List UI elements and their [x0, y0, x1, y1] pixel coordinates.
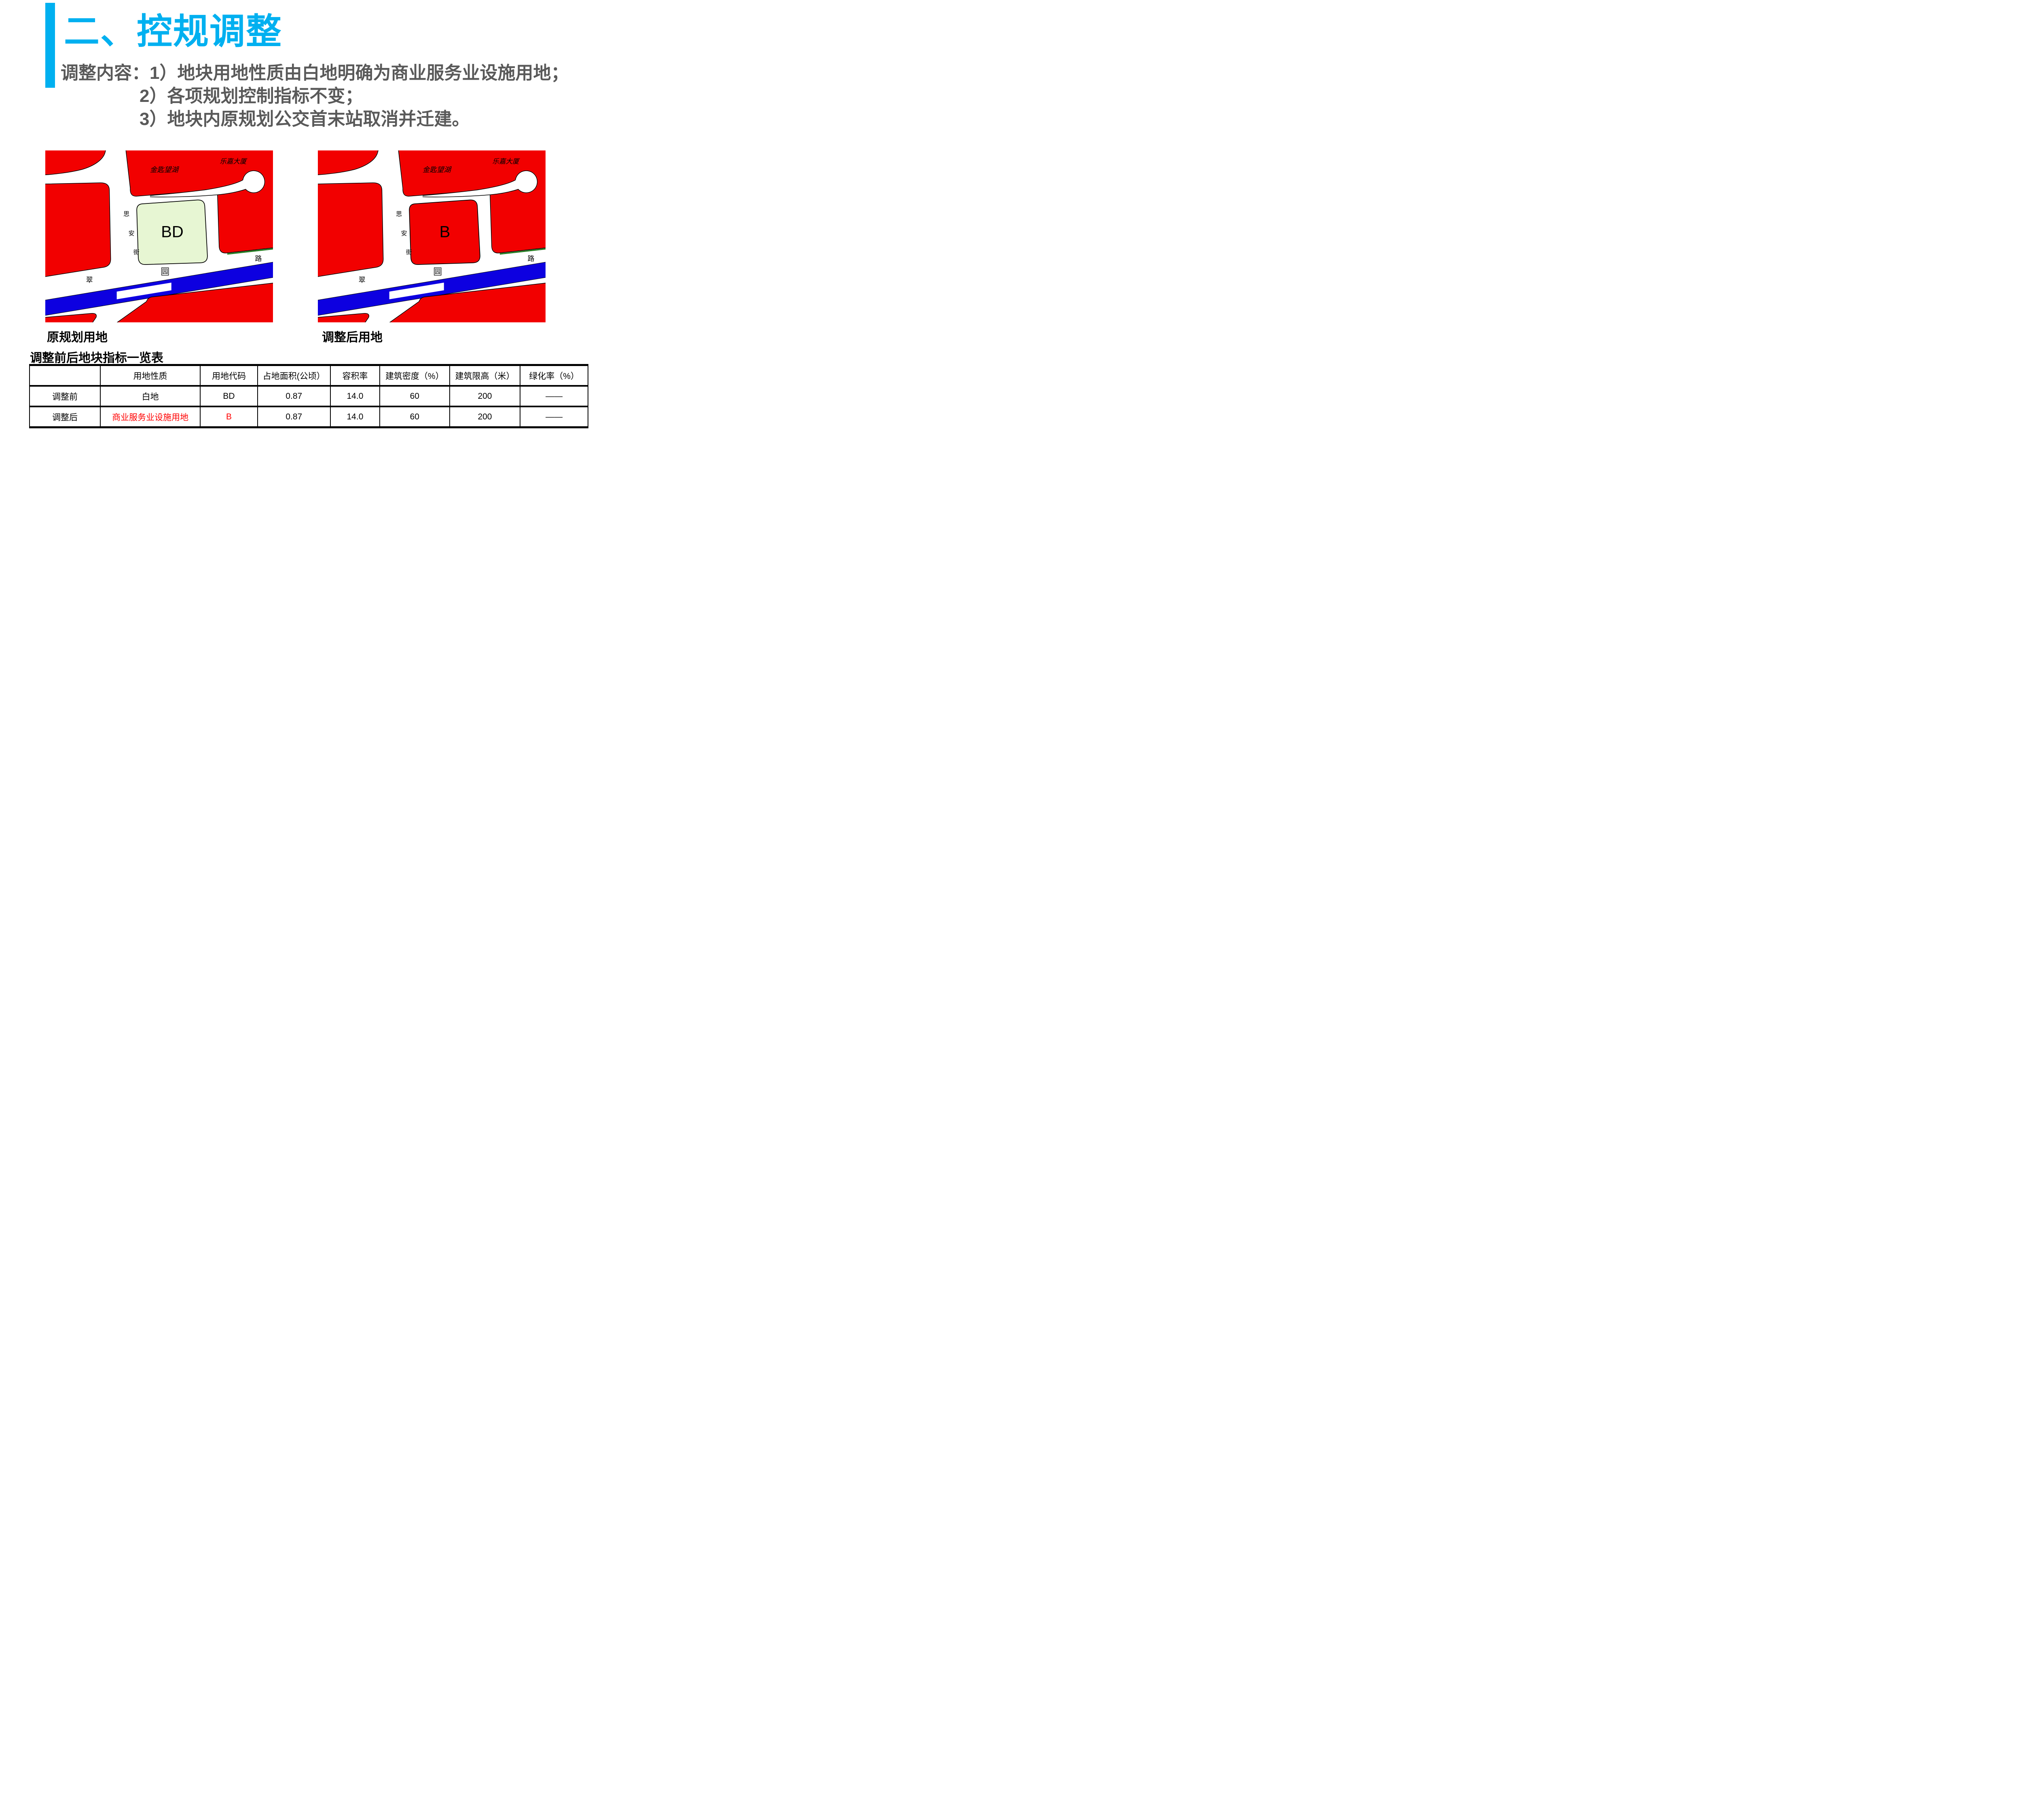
parcel-west	[45, 183, 111, 277]
map-before-caption: 原规划用地	[47, 331, 108, 345]
cell-height-limit: 200	[449, 387, 520, 406]
label-jinchiwanghu: 金匙望湖	[423, 166, 452, 174]
header-cell-area: 占地面积(公顷）	[257, 366, 330, 385]
label-street-si: 思	[123, 211, 129, 218]
header-cell-far: 容积率	[330, 366, 379, 385]
label-street-an: 安	[401, 230, 407, 237]
cell-far: 14.0	[330, 387, 379, 406]
parcel-south-west	[318, 313, 369, 322]
map-after-caption: 调整后用地	[322, 331, 383, 345]
adjustment-line-1: 调整内容：1）地块用地性质由白地明确为商业服务业设施用地；	[61, 61, 569, 85]
map-after-canvas: 金匙望湖 乐嘉大厦 思 安 街 翠 园 路 B	[318, 150, 546, 322]
header-cell-height-limit: 建筑限高（米）	[449, 366, 520, 385]
cell-area: 0.87	[257, 387, 330, 406]
indicator-table: 用地性质 用地代码 占地面积(公顷） 容积率 建筑密度（%） 建筑限高（米） 绿…	[29, 364, 588, 428]
adjustment-content-block: 调整内容：1）地块用地性质由白地明确为商业服务业设施用地； 2）各项规划控制指标…	[61, 61, 569, 131]
header-cell-land-use: 用地性质	[100, 366, 200, 385]
row-label: 调整前	[30, 387, 100, 406]
row-label: 调整后	[30, 407, 100, 426]
label-road-cui: 翠	[359, 276, 366, 284]
adjustment-line-2: 2）各项规划控制指标不变；	[140, 85, 569, 108]
table-title: 调整前后地块指标一览表	[30, 348, 163, 366]
label-street-si: 思	[396, 211, 402, 218]
slide-page: 二、控规调整 调整内容：1）地块用地性质由白地明确为商业服务业设施用地； 2）各…	[0, 0, 607, 455]
page-title: 二、控规调整	[64, 10, 282, 53]
label-street-an: 安	[129, 230, 135, 237]
header-cell-density: 建筑密度（%）	[379, 366, 449, 385]
label-lejiadasha: 乐嘉大厦	[492, 158, 520, 165]
label-jinchiwanghu: 金匙望湖	[150, 166, 180, 174]
cell-far: 14.0	[330, 407, 379, 426]
cell-green-ratio: ——	[520, 407, 588, 426]
header-cell-land-code: 用地代码	[200, 366, 257, 385]
parcel-code-label: BD	[161, 223, 184, 241]
header-cell-green-ratio: 绿化率（%）	[520, 366, 588, 385]
label-road-lu: 路	[255, 255, 262, 262]
cell-density: 60	[379, 387, 449, 406]
cell-land-use: 白地	[100, 387, 200, 406]
label-road-yuan: 园	[435, 269, 441, 275]
parcel-topleft	[318, 150, 379, 175]
label-street-jie: 街	[406, 249, 412, 256]
map-before: 金匙望湖 乐嘉大厦 思 安 街 翠 园 路 BD	[45, 150, 273, 322]
table-row-before: 调整前 白地 BD 0.87 14.0 60 200 ——	[30, 385, 588, 406]
cell-area: 0.87	[257, 407, 330, 426]
parcel-south-west	[45, 313, 96, 322]
header-cell-blank	[30, 366, 100, 385]
table-header-row: 用地性质 用地代码 占地面积(公顷） 容积率 建筑密度（%） 建筑限高（米） 绿…	[30, 366, 588, 385]
table-row-after: 调整后 商业服务业设施用地 B 0.87 14.0 60 200 ——	[30, 406, 588, 426]
cell-land-code-changed: B	[200, 407, 257, 426]
adjustment-line-3: 3）地块内原规划公交首末站取消并迁建。	[140, 108, 569, 131]
parcel-topleft	[45, 150, 106, 175]
map-before-canvas: 金匙望湖 乐嘉大厦 思 安 街 翠 园 路 BD	[45, 150, 273, 322]
cell-land-code: BD	[200, 387, 257, 406]
label-street-jie: 街	[133, 249, 140, 256]
title-accent-bar	[45, 3, 55, 88]
parcel-west	[318, 183, 383, 277]
cell-land-use-changed: 商业服务业设施用地	[100, 407, 200, 426]
label-road-lu: 路	[527, 255, 534, 262]
cell-height-limit: 200	[449, 407, 520, 426]
cell-density: 60	[379, 407, 449, 426]
map-after: 金匙望湖 乐嘉大厦 思 安 街 翠 园 路 B	[318, 150, 546, 322]
cell-green-ratio: ——	[520, 387, 588, 406]
parcel-code-label: B	[440, 223, 451, 241]
label-road-yuan: 园	[162, 269, 168, 275]
label-lejiadasha: 乐嘉大厦	[220, 158, 247, 165]
label-road-cui: 翠	[86, 276, 93, 284]
